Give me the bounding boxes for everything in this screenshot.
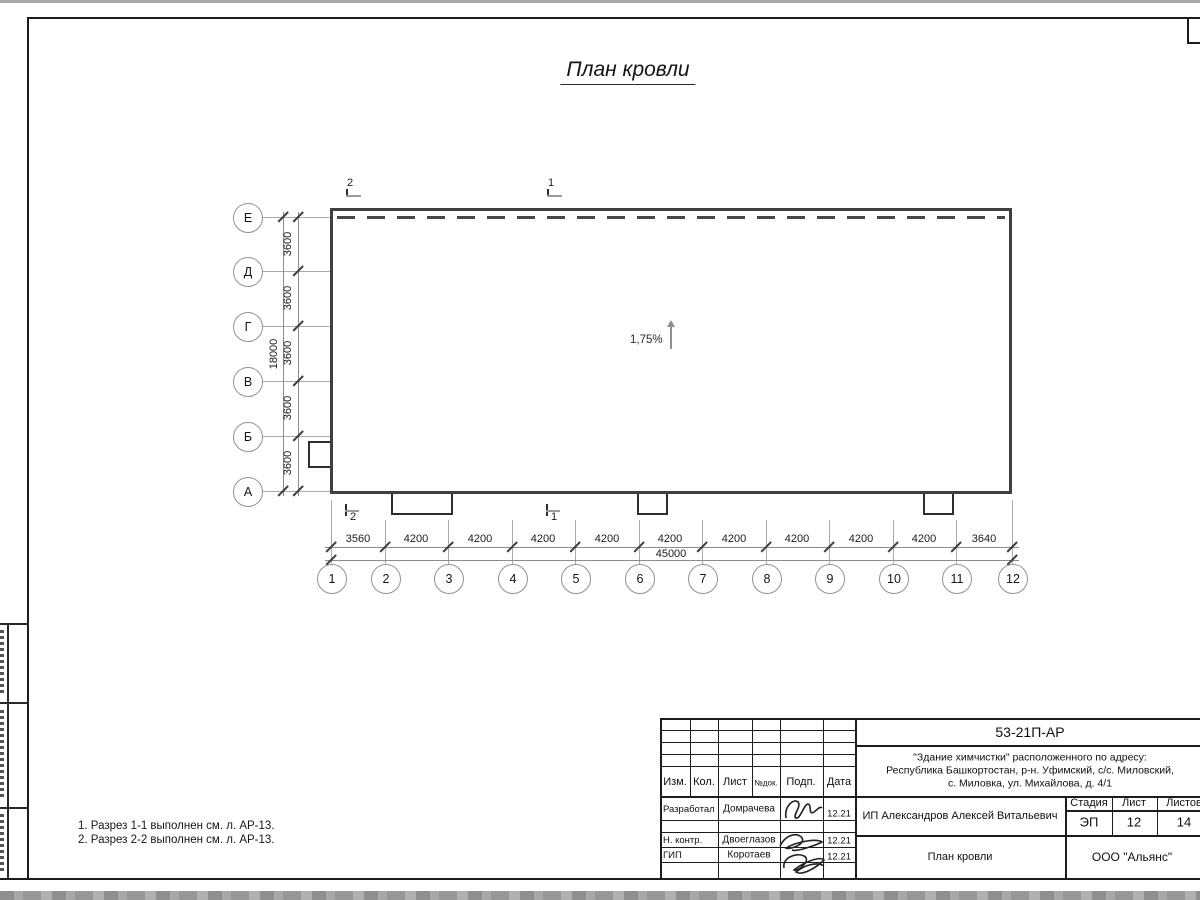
col-ext-line: [512, 520, 513, 564]
notes: 1. Разрез 1-1 выполнен см. л. АР-13. 2. …: [78, 819, 275, 847]
slope-arrow: [670, 325, 672, 349]
col-ext-line: [331, 500, 332, 564]
axis-circle-10: 10: [879, 564, 909, 594]
col-dim-label: 3560: [346, 533, 370, 545]
tb-address-line3: с. Миловка, ул. Михайлова, д. 4/1: [886, 778, 1174, 791]
row-dim-line: [298, 212, 299, 496]
tb-line: [1112, 796, 1113, 835]
frame-bottom: [0, 878, 1200, 880]
section-mark-bottom-2: 2: [350, 511, 356, 523]
col-ext-line: [702, 520, 703, 564]
tb-line: [855, 718, 857, 878]
frame-corner-box: [1187, 17, 1200, 44]
page-title-text: План кровли: [566, 58, 689, 81]
tb-line: [1065, 796, 1067, 878]
tb-client: ИП Александров Алексей Витальевич: [862, 810, 1057, 822]
margin-clipped-text-1: [0, 630, 4, 696]
tb-stage-label: Стадия: [1070, 797, 1108, 809]
tb-line: [660, 820, 855, 821]
tb-sheets-value: 14: [1177, 815, 1191, 830]
col-dim-label: 4200: [531, 533, 555, 545]
col-ext-line: [385, 520, 386, 564]
margin-divider-1: [0, 623, 29, 625]
tb-row1-name: Домрачева: [723, 804, 775, 815]
col-dim-label: 4200: [404, 533, 428, 545]
tb-address-line1: "Здание химчистки" расположенного по адр…: [886, 752, 1174, 765]
tb-address: "Здание химчистки" расположенного по адр…: [886, 752, 1174, 791]
tb-row3-name: Коротаев: [727, 850, 770, 861]
roof-protrusion-left: [308, 441, 330, 468]
col-dim-label: 4200: [785, 533, 809, 545]
axis-circle-6: 6: [625, 564, 655, 594]
roof-protrusion-bottom-1: [391, 494, 453, 515]
col-ext-line: [893, 520, 894, 564]
tb-col-ndok: №док.: [754, 779, 777, 788]
row-dim-label: 3600: [282, 333, 294, 373]
tb-line: [660, 718, 662, 878]
axis-circle-V: В: [233, 367, 263, 397]
row-dim-label: 3600: [282, 443, 294, 483]
tb-col-podp: Подп.: [786, 776, 815, 788]
col-ext-line: [829, 520, 830, 564]
roof-dashed-line: [337, 216, 1005, 219]
axis-circle-B: Б: [233, 422, 263, 452]
axis-circle-5: 5: [561, 564, 591, 594]
frame-top: [27, 17, 1200, 19]
section-mark-bottom-1: 1: [551, 511, 557, 523]
col-dim-label: 4200: [722, 533, 746, 545]
scan-band-top: [0, 0, 1200, 3]
tb-row2-role: Н. контр.: [663, 835, 702, 846]
tb-row2-date: 12.21: [827, 836, 851, 847]
tb-row2-name: Двоеглазов: [722, 835, 775, 846]
tb-sheet-label: Лист: [1122, 797, 1146, 809]
signature-razrabotal: [782, 796, 824, 824]
tb-stage-value: ЭП: [1080, 815, 1099, 830]
slope-label: 1,75%: [630, 334, 663, 346]
tb-row1-role: Разработал: [663, 804, 715, 815]
row-dim-label: 3600: [282, 278, 294, 318]
roof-protrusion-bottom-2: [637, 494, 668, 515]
col-ext-line: [448, 520, 449, 564]
signature-gip: [776, 828, 828, 878]
col-ext-line: [575, 520, 576, 564]
margin-clipped-text-3: [0, 814, 4, 872]
row-dim-label: 3600: [282, 388, 294, 428]
section-mark-top-2-line: [346, 195, 361, 197]
axis-circle-D: Д: [233, 257, 263, 287]
col-ext-line: [639, 520, 640, 564]
section-mark-top-2: 2: [347, 177, 353, 189]
axis-circle-3: 3: [434, 564, 464, 594]
roof-outline: [330, 208, 1012, 494]
tb-line: [660, 718, 1200, 720]
note-line-2: 2. Разрез 2-2 выполнен см. л. АР-13.: [78, 833, 275, 847]
axis-circle-A: А: [233, 477, 263, 507]
section-mark-top-1-line: [547, 195, 562, 197]
col-total-dim-line: [325, 560, 1019, 561]
tb-line: [1065, 810, 1200, 812]
margin-divider-3: [0, 807, 29, 809]
tb-doc-number: 53-21П-АР: [995, 724, 1064, 740]
tb-row3-date: 12.21: [827, 852, 851, 863]
frame-left: [27, 17, 29, 880]
col-dim-label: 4200: [849, 533, 873, 545]
note-line-1: 1. Разрез 1-1 выполнен см. л. АР-13.: [78, 819, 275, 833]
axis-circle-8: 8: [752, 564, 782, 594]
tb-line: [718, 718, 719, 878]
col-ext-line: [1012, 500, 1013, 564]
tb-sheet-value: 12: [1127, 815, 1141, 830]
axis-circle-G: Г: [233, 312, 263, 342]
axis-circle-4: 4: [498, 564, 528, 594]
tb-address-line2: Республика Башкортостан, р-н. Уфимский, …: [886, 765, 1174, 778]
drawing-sheet: { "title": "План кровли", "plan": { "slo…: [0, 0, 1200, 900]
tb-col-izm: Изм.: [663, 776, 687, 788]
row-dim-label: 3600: [282, 224, 294, 264]
tb-line: [690, 718, 691, 797]
roof-protrusion-bottom-3: [923, 494, 954, 515]
axis-circle-1: 1: [317, 564, 347, 594]
tb-line: [752, 718, 753, 797]
tb-row1-date: 12.21: [827, 809, 851, 820]
tb-row3-role: ГИП: [663, 850, 682, 861]
tb-line: [855, 745, 1200, 747]
axis-circle-12: 12: [998, 564, 1028, 594]
axis-circle-11: 11: [942, 564, 972, 594]
tb-sheet-title: План кровли: [928, 851, 993, 863]
col-ext-line: [956, 520, 957, 564]
tb-col-data: Дата: [827, 776, 851, 788]
row-total-label: 18000: [268, 330, 280, 378]
col-dim-label: 4200: [468, 533, 492, 545]
axis-circle-E: Е: [233, 203, 263, 233]
section-mark-top-1: 1: [548, 177, 554, 189]
margin-divider-2: [0, 702, 29, 704]
tb-sheets-label: Листов: [1166, 797, 1200, 809]
axis-circle-9: 9: [815, 564, 845, 594]
col-total-label: 45000: [656, 548, 687, 560]
axis-circle-7: 7: [688, 564, 718, 594]
axis-circle-2: 2: [371, 564, 401, 594]
tb-col-list: Лист: [723, 776, 747, 788]
tb-line: [1157, 796, 1158, 835]
tb-col-kol: Кол.: [693, 776, 715, 788]
margin-column-line: [7, 623, 9, 878]
col-dim-label: 4200: [912, 533, 936, 545]
col-dim-label: 4200: [658, 533, 682, 545]
tb-line: [660, 796, 1200, 798]
col-ext-line: [766, 520, 767, 564]
tb-company: ООО "Альянс": [1092, 850, 1172, 864]
col-dim-label: 4200: [595, 533, 619, 545]
tb-line: [855, 835, 1200, 837]
margin-clipped-text-2: [0, 710, 4, 800]
page-title: План кровли: [560, 58, 695, 85]
slope-arrow-head-icon: [667, 320, 675, 327]
scan-band-bottom: [0, 891, 1200, 900]
col-dim-label: 3640: [972, 533, 996, 545]
